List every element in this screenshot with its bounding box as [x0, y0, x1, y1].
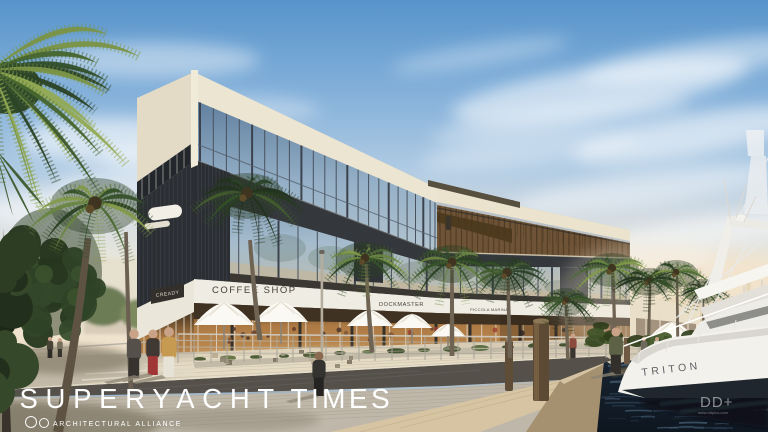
svg-text:SUPERYACHT: SUPERYACHT — [20, 383, 282, 414]
svg-text:PICCOLA MARINA: PICCOLA MARINA — [470, 307, 508, 312]
svg-text:www.ddplus.com: www.ddplus.com — [698, 410, 729, 415]
svg-text:DD+: DD+ — [700, 394, 733, 411]
svg-text:ARCHITECTURAL ALLIANCE: ARCHITECTURAL ALLIANCE — [53, 421, 182, 428]
svg-text:DOCKMASTER: DOCKMASTER — [379, 302, 424, 308]
svg-text:TIMES: TIMES — [291, 383, 394, 414]
